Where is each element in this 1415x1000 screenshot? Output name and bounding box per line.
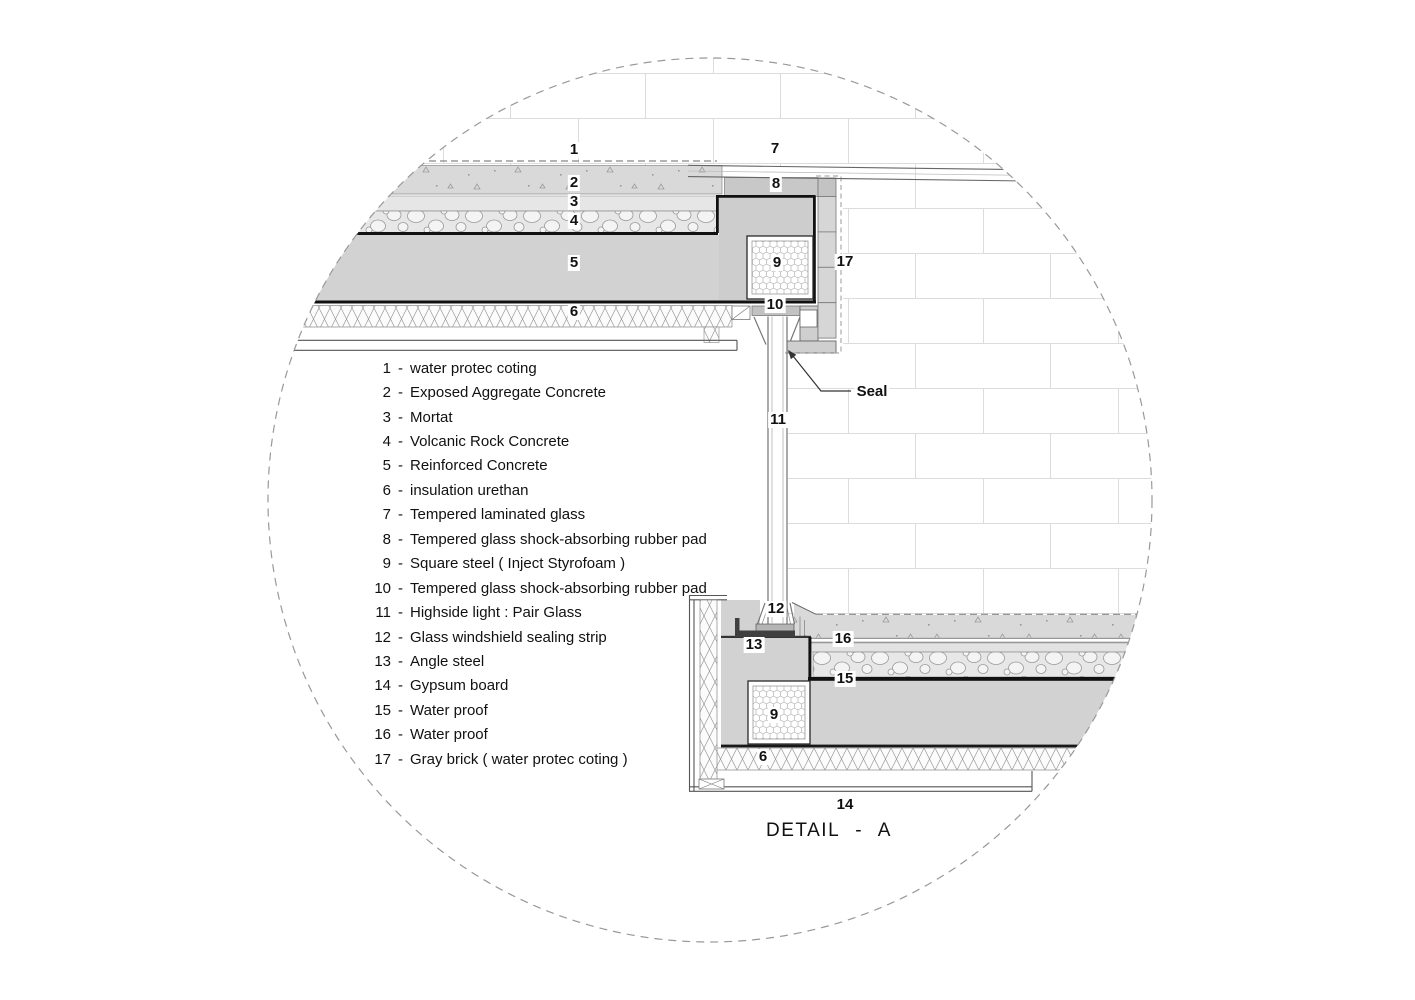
legend-row: 8-Tempered glass shock-absorbing rubber … — [362, 527, 707, 551]
legend-num: 11 — [362, 604, 391, 621]
legend-row: 15-Water proof — [362, 698, 707, 722]
callout-5: 5 — [568, 255, 580, 271]
legend-dash: - — [391, 677, 410, 694]
legend-num: 14 — [362, 677, 391, 694]
callout-16: 16 — [833, 631, 854, 647]
legend-text: insulation urethan — [410, 482, 528, 499]
legend-num: 4 — [362, 433, 391, 450]
legend-row: 9-Square steel ( Inject Styrofoam ) — [362, 552, 707, 576]
callout-1: 1 — [568, 142, 580, 158]
callout-14: 14 — [835, 797, 856, 813]
legend-row: 11-Highside light : Pair Glass — [362, 600, 707, 624]
legend-row: 14-Gypsum board — [362, 674, 707, 698]
legend-num: 10 — [362, 580, 391, 597]
callout-13: 13 — [744, 637, 765, 653]
callout-3: 3 — [568, 194, 580, 210]
legend-row: 4-Volcanic Rock Concrete — [362, 429, 707, 453]
legend-dash: - — [391, 726, 410, 743]
legend-num: 16 — [362, 726, 391, 743]
aggregate-concrete-layer — [290, 166, 722, 195]
legend-text: Reinforced Concrete — [410, 457, 548, 474]
legend-text: Mortat — [410, 409, 453, 426]
legend-num: 9 — [362, 555, 391, 572]
callout-17: 17 — [835, 254, 856, 270]
callout-9-lower: 9 — [768, 707, 780, 723]
legend-row: 3-Mortat — [362, 405, 707, 429]
insulation-lower — [713, 748, 1140, 770]
callout-11: 11 — [768, 412, 788, 428]
legend-row: 6-insulation urethan — [362, 478, 707, 502]
legend-num: 3 — [362, 409, 391, 426]
ceiling-lines — [284, 340, 737, 350]
legend-num: 7 — [362, 506, 391, 523]
legend-text: Exposed Aggregate Concrete — [410, 384, 606, 401]
legend-text: Water proof — [410, 702, 488, 719]
legend-text: Tempered laminated glass — [410, 506, 585, 523]
legend-row: 13-Angle steel — [362, 649, 707, 673]
legend-text: Water proof — [410, 726, 488, 743]
detail-a-section-drawing — [0, 0, 1415, 1000]
legend-dash: - — [391, 360, 410, 377]
legend-dash: - — [391, 506, 410, 523]
legend-text: Gypsum board — [410, 677, 508, 694]
callout-10: 10 — [765, 297, 786, 313]
legend-text: water protec coting — [410, 360, 537, 377]
callout-8: 8 — [770, 176, 782, 192]
callout-7: 7 — [769, 141, 781, 157]
callout-9-upper: 9 — [771, 255, 783, 271]
legend-row: 16-Water proof — [362, 723, 707, 747]
callout-4: 4 — [568, 213, 580, 229]
mortar-layer-upper — [300, 196, 717, 211]
legend-text: Gray brick ( water protec coting ) — [410, 751, 628, 768]
legend-row: 17-Gray brick ( water protec coting ) — [362, 747, 707, 771]
legend-dash: - — [391, 751, 410, 768]
legend-dash: - — [391, 482, 410, 499]
reinforced-concrete-upper — [290, 235, 719, 301]
legend-dash: - — [391, 653, 410, 670]
material-legend: 1-water protec coting 2-Exposed Aggregat… — [362, 356, 707, 771]
architectural-detail-drawing: 1 7 2 8 3 4 5 9 17 6 10 11 Seal 12 13 16… — [0, 0, 1415, 1000]
glass-funnel — [754, 317, 800, 345]
legend-dash: - — [391, 555, 410, 572]
callout-6-lower: 6 — [757, 749, 769, 765]
legend-dash: - — [391, 384, 410, 401]
legend-text: Angle steel — [410, 653, 484, 670]
legend-num: 8 — [362, 531, 391, 548]
legend-dash: - — [391, 629, 410, 646]
legend-dash: - — [391, 409, 410, 426]
legend-num: 13 — [362, 653, 391, 670]
legend-dash: - — [391, 580, 410, 597]
legend-row: 12-Glass windshield sealing strip — [362, 625, 707, 649]
seal-label: Seal — [855, 384, 890, 400]
drawing-title: DETAIL - A — [766, 820, 892, 842]
legend-num: 15 — [362, 702, 391, 719]
legend-dash: - — [391, 702, 410, 719]
volcanic-concrete-upper — [300, 211, 717, 233]
legend-num: 2 — [362, 384, 391, 401]
legend-text: Highside light : Pair Glass — [410, 604, 582, 621]
legend-text: Tempered glass shock-absorbing rubber pa… — [410, 531, 707, 548]
legend-row: 2-Exposed Aggregate Concrete — [362, 380, 707, 404]
waterproof-15-line — [808, 677, 1145, 681]
legend-num: 5 — [362, 457, 391, 474]
legend-num: 17 — [362, 751, 391, 768]
volcanic-concrete-lower — [813, 652, 1145, 677]
legend-text: Volcanic Rock Concrete — [410, 433, 569, 450]
legend-text: Square steel ( Inject Styrofoam ) — [410, 555, 625, 572]
callout-15: 15 — [835, 671, 856, 687]
legend-dash: - — [391, 433, 410, 450]
legend-text: Glass windshield sealing strip — [410, 629, 607, 646]
legend-dash: - — [391, 604, 410, 621]
legend-dash: - — [391, 457, 410, 474]
legend-num: 12 — [362, 629, 391, 646]
legend-row: 5-Reinforced Concrete — [362, 454, 707, 478]
highside-light-glass — [768, 317, 787, 625]
legend-num: 6 — [362, 482, 391, 499]
legend-row: 10-Tempered glass shock-absorbing rubber… — [362, 576, 707, 600]
insulation-upper — [288, 306, 732, 328]
callout-6-upper: 6 — [568, 304, 580, 320]
callout-2: 2 — [568, 175, 580, 191]
legend-row: 7-Tempered laminated glass — [362, 503, 707, 527]
legend-num: 1 — [362, 360, 391, 377]
legend-row: 1-water protec coting — [362, 356, 707, 380]
legend-dash: - — [391, 531, 410, 548]
callout-12: 12 — [766, 601, 787, 617]
legend-text: Tempered glass shock-absorbing rubber pa… — [410, 580, 707, 597]
